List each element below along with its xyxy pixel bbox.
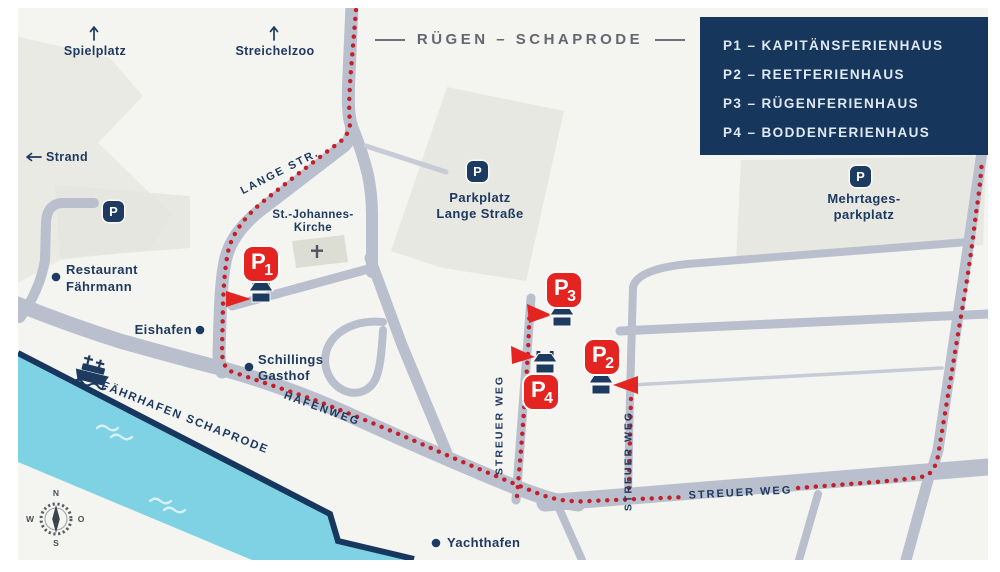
legend-item-p1: P1 – KAPITÄNSFERIENHAUS — [723, 31, 988, 60]
label-strand: Strand — [46, 150, 88, 165]
label-restaurant-line2: Fährmann — [66, 279, 132, 294]
label-eishafen: Eishafen — [106, 322, 192, 337]
compass-s: S — [51, 538, 61, 548]
compass-o: O — [76, 514, 86, 524]
compass-icon — [41, 504, 71, 534]
compass-n: N — [51, 488, 61, 498]
house-icon-p2 — [589, 372, 613, 394]
label-schillings-line2: Gasthof — [258, 368, 310, 383]
street-label-streuer-weg-w: STREUER WEG — [494, 373, 506, 478]
parking-icon-strand: P — [103, 201, 124, 222]
marker-p3-number: 3 — [567, 288, 576, 306]
title-rule-left — [375, 39, 405, 41]
poi-dot-yachthafen — [432, 539, 441, 548]
label-mehrtages-line2: parkplatz — [804, 207, 924, 222]
parking-area-strand — [55, 185, 190, 258]
street-label-streuer-weg-e: STREUER WEG — [623, 409, 635, 514]
marker-p4-number: 4 — [544, 390, 553, 408]
schaprode-map: RÜGEN – SCHAPRODE P1 – KAPITÄNSFERIENHAU… — [0, 0, 1000, 572]
parking-icon-mehrtages: P — [850, 166, 871, 187]
title-rule-right — [655, 39, 685, 41]
marker-p1-number: 1 — [264, 262, 273, 280]
label-yachthafen: Yachthafen — [447, 535, 520, 550]
marker-badge-p2: P 2 — [585, 340, 619, 374]
marker-badge-p1: P 1 — [244, 247, 278, 281]
legend-item-p2: P2 – REETFERIENHAUS — [723, 60, 988, 89]
map-title: RÜGEN – SCHAPRODE — [375, 31, 685, 48]
label-kirche-line1: St.-Johannes- — [263, 209, 363, 222]
legend-item-p4: P4 – BODDENFERIENHAUS — [723, 118, 988, 147]
house-icon-p1 — [249, 280, 273, 302]
compass-w: W — [25, 514, 35, 524]
legend-item-p3: P3 – RÜGENFERIENHAUS — [723, 89, 988, 118]
label-parkplatz-lange-line1: Parkplatz — [420, 190, 540, 205]
label-mehrtages-line1: Mehrtages- — [804, 191, 924, 206]
label-schillings-line1: Schillings — [258, 352, 323, 367]
house-icon-p4 — [533, 351, 557, 373]
marker-badge-p3: P 3 — [547, 273, 581, 307]
parking-icon-lange: P — [467, 161, 488, 182]
poi-dot-restaurant — [52, 273, 61, 282]
label-parkplatz-lange-line2: Lange Straße — [420, 206, 540, 221]
legend-box: P1 – KAPITÄNSFERIENHAUS P2 – REETFERIENH… — [700, 17, 988, 155]
label-restaurant-line1: Restaurant — [66, 262, 138, 277]
poi-dot-eishafen — [196, 326, 205, 335]
house-icon-p3 — [550, 304, 574, 326]
label-spielplatz: Spielplatz — [45, 44, 145, 59]
marker-badge-p4: P 4 — [524, 375, 558, 409]
label-streichelzoo: Streichelzoo — [225, 44, 325, 59]
label-kirche-line2: Kirche — [263, 222, 363, 235]
page-title: RÜGEN – SCHAPRODE — [417, 31, 643, 48]
poi-dot-schillings — [245, 363, 254, 372]
marker-p2-number: 2 — [605, 355, 614, 373]
